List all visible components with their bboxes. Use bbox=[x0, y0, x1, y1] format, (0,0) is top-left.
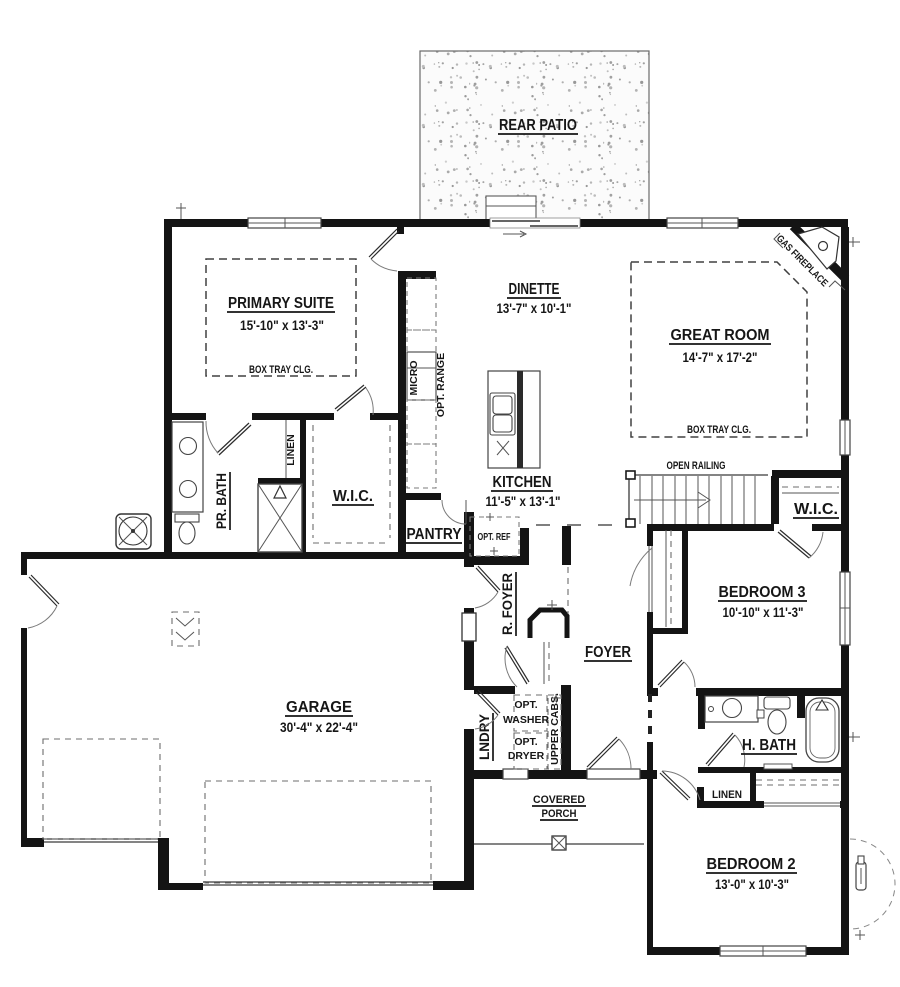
svg-text:11'-5" x 13'-1": 11'-5" x 13'-1" bbox=[486, 494, 561, 509]
svg-text:DRYER: DRYER bbox=[508, 750, 545, 762]
svg-text:REAR PATIO: REAR PATIO bbox=[499, 117, 577, 134]
svg-text:OPT. REF: OPT. REF bbox=[478, 531, 511, 543]
svg-text:MICRO: MICRO bbox=[408, 361, 420, 396]
svg-text:LINEN: LINEN bbox=[285, 434, 297, 466]
svg-text:OPT.: OPT. bbox=[514, 736, 537, 748]
svg-text:14'-7" x 17'-2": 14'-7" x 17'-2" bbox=[683, 350, 758, 365]
svg-text:30'-4" x 22'-4": 30'-4" x 22'-4" bbox=[280, 720, 358, 735]
svg-text:10'-10" x 11'-3": 10'-10" x 11'-3" bbox=[723, 605, 804, 620]
svg-text:PRIMARY SUITE: PRIMARY SUITE bbox=[228, 295, 334, 312]
svg-text:PR. BATH: PR. BATH bbox=[214, 473, 229, 529]
svg-text:13'-7" x 10'-1": 13'-7" x 10'-1" bbox=[497, 301, 572, 316]
svg-text:BEDROOM 2: BEDROOM 2 bbox=[707, 856, 796, 873]
svg-text:15'-10" x 13'-3": 15'-10" x 13'-3" bbox=[240, 318, 324, 333]
svg-text:COVERED: COVERED bbox=[533, 794, 585, 806]
svg-text:W.I.C.: W.I.C. bbox=[794, 501, 838, 518]
svg-text:LINEN: LINEN bbox=[712, 789, 742, 801]
svg-text:OPEN RAILING: OPEN RAILING bbox=[667, 460, 726, 472]
svg-text:GREAT ROOM: GREAT ROOM bbox=[671, 327, 770, 344]
svg-text:GARAGE: GARAGE bbox=[286, 699, 352, 716]
svg-text:FOYER: FOYER bbox=[585, 644, 631, 661]
svg-text:BOX TRAY CLG.: BOX TRAY CLG. bbox=[687, 424, 751, 436]
svg-text:KITCHEN: KITCHEN bbox=[493, 474, 552, 491]
svg-text:W.I.C.: W.I.C. bbox=[333, 488, 373, 505]
svg-text:BOX TRAY CLG.: BOX TRAY CLG. bbox=[249, 364, 313, 376]
svg-text:UPPER CABS.: UPPER CABS. bbox=[549, 693, 561, 765]
svg-text:LNDRY: LNDRY bbox=[477, 714, 492, 760]
svg-text:BEDROOM 3: BEDROOM 3 bbox=[719, 584, 806, 601]
svg-text:DINETTE: DINETTE bbox=[509, 281, 560, 298]
svg-text:PORCH: PORCH bbox=[542, 808, 577, 820]
svg-text:H. BATH: H. BATH bbox=[742, 737, 796, 754]
svg-text:OPT. RANGE: OPT. RANGE bbox=[435, 353, 447, 417]
svg-text:WASHER: WASHER bbox=[503, 714, 550, 726]
svg-text:OPT.: OPT. bbox=[514, 699, 537, 711]
svg-text:PANTRY: PANTRY bbox=[407, 526, 463, 543]
svg-text:R. FOYER: R. FOYER bbox=[500, 573, 515, 635]
svg-text:13'-0" x 10'-3": 13'-0" x 10'-3" bbox=[715, 877, 789, 892]
